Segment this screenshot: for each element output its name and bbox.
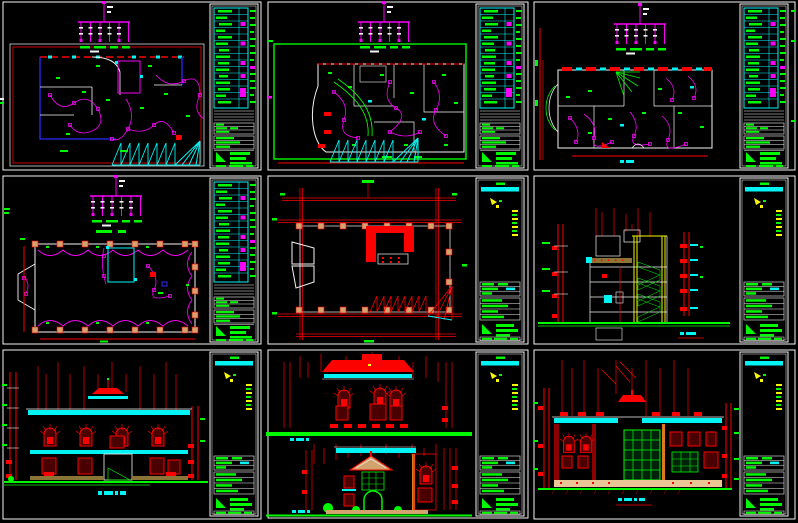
equipment-cluster	[147, 265, 172, 299]
top-dimension-lines	[562, 360, 688, 416]
upper-elevation	[266, 352, 472, 441]
caption	[616, 498, 652, 505]
roof-slope-hatch	[292, 242, 314, 288]
cad-multi-sheet-preview	[0, 0, 798, 523]
floor-plan	[40, 56, 204, 141]
sheet-3	[534, 2, 795, 170]
sheet-2	[268, 1, 528, 170]
top-dimension-lines	[596, 208, 650, 236]
right-dimension-lines	[188, 406, 205, 480]
exterior-stair	[370, 286, 452, 320]
section-structure	[586, 224, 667, 322]
stair-core	[115, 61, 143, 93]
lower-elevation	[266, 444, 472, 516]
stair-core	[102, 246, 137, 284]
air-termination-wire	[38, 250, 188, 256]
sheet-4	[3, 175, 261, 344]
stair-bulkhead	[366, 226, 414, 264]
sheet-5	[268, 176, 528, 344]
floor-plan	[546, 67, 712, 148]
left-dimension-lines	[534, 388, 549, 488]
right-dimension-lines	[680, 232, 703, 316]
left-dimension-lines	[542, 224, 568, 324]
elevation	[26, 378, 192, 480]
stair-flights	[638, 262, 660, 322]
sheet-7	[2, 350, 261, 519]
curved-stair	[616, 72, 640, 96]
arched-door	[364, 491, 382, 510]
sheet-8	[266, 350, 528, 518]
right-dimension-lines	[722, 403, 739, 488]
lighting-wiring	[334, 82, 446, 138]
cad-drawing-surface	[0, 0, 798, 523]
sheet-9	[534, 350, 795, 519]
caption	[98, 491, 126, 495]
roof-plan	[18, 241, 198, 333]
ground-band	[266, 432, 472, 436]
left-dimension-lines	[2, 372, 19, 482]
floor-plan	[312, 64, 464, 158]
sheet-1	[0, 1, 261, 170]
sheet-6	[534, 176, 795, 344]
top-dimension-lines	[38, 362, 176, 412]
elevation	[552, 390, 724, 487]
